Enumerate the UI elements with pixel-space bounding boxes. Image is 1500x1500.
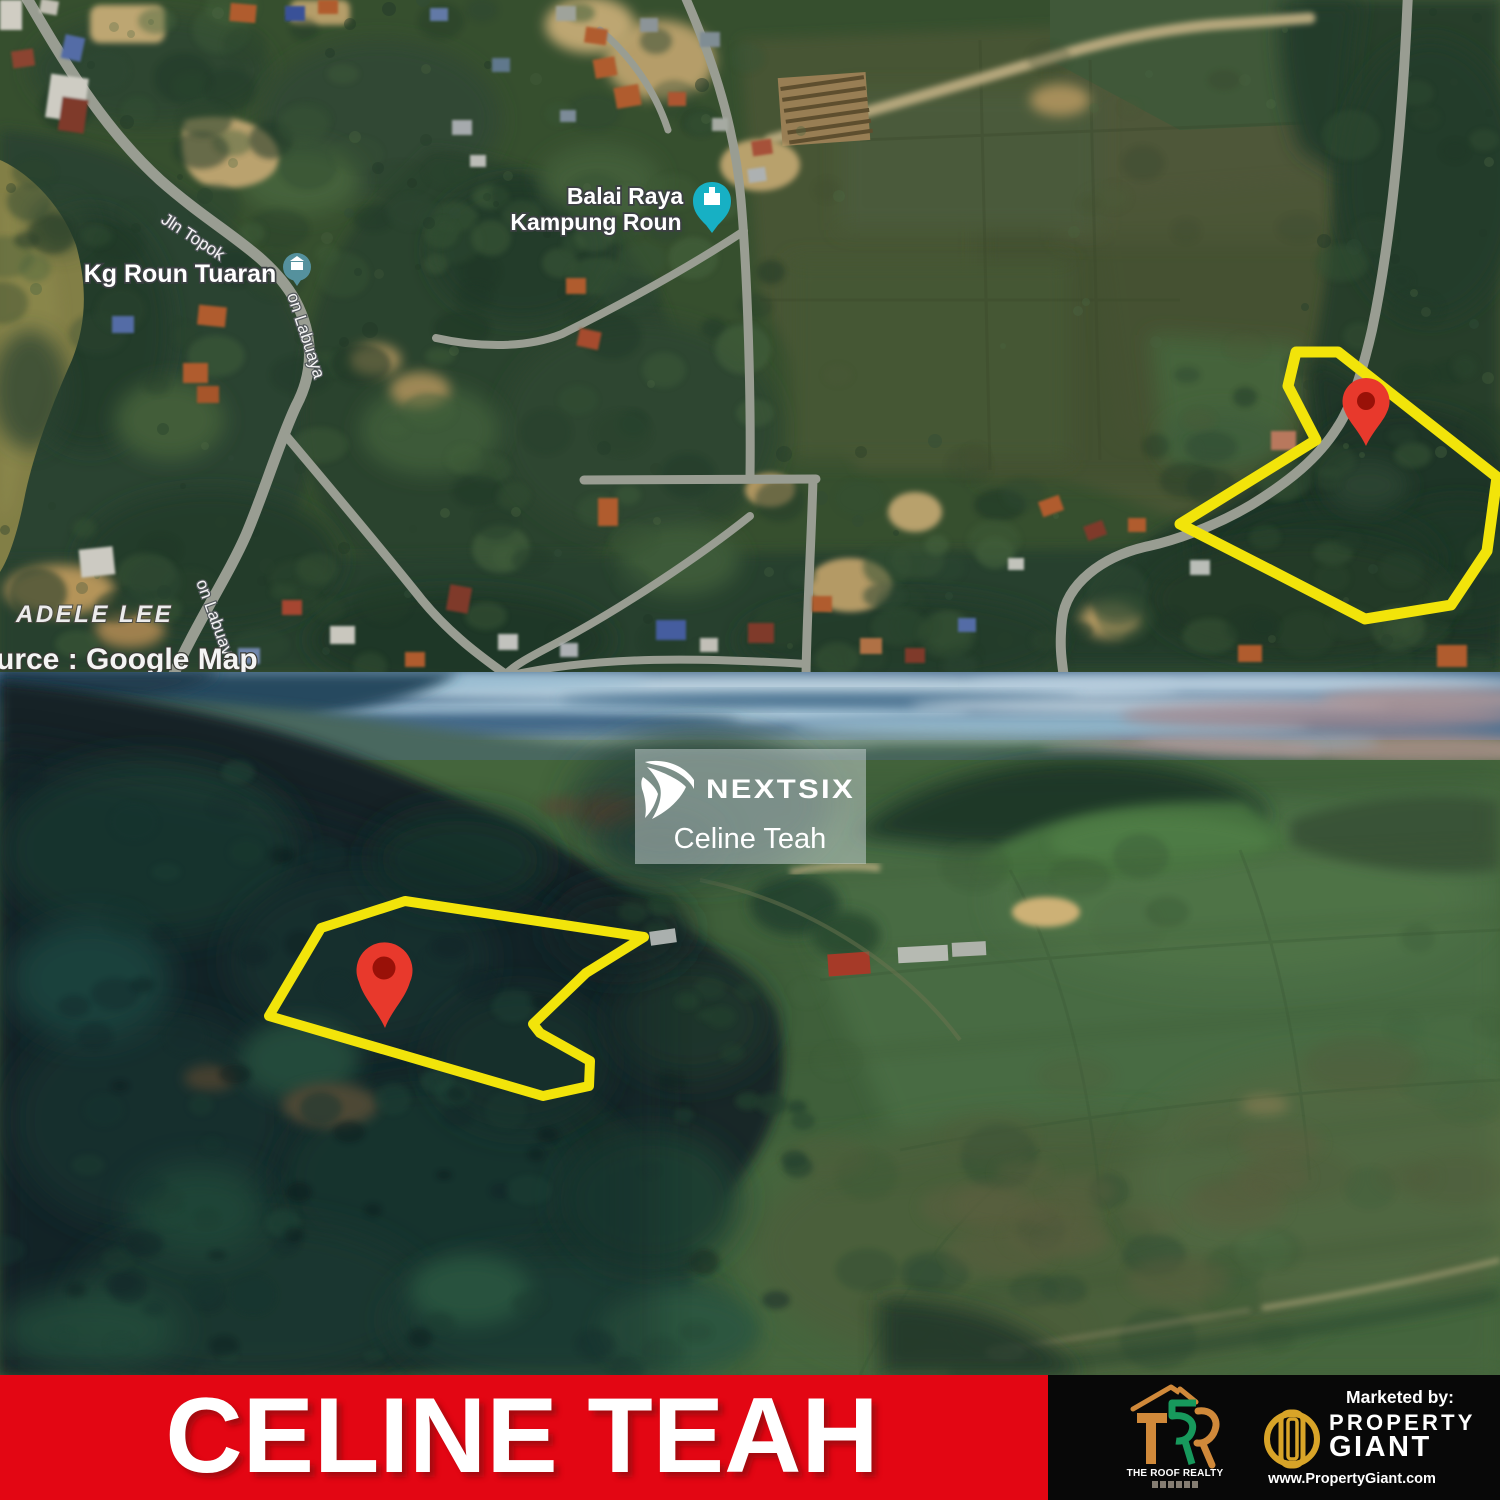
svg-text:NEXTSIX: NEXTSIX [706, 774, 855, 804]
svg-text:GIANT: GIANT [1329, 1431, 1432, 1463]
svg-text:ADELE LEE: ADELE LEE [15, 601, 173, 628]
svg-text:THE ROOF REALTY: THE ROOF REALTY [1127, 1468, 1224, 1479]
svg-text:www.PropertyGiant.com: www.PropertyGiant.com [1267, 1471, 1436, 1487]
svg-text:urce : Google Map: urce : Google Map [0, 643, 258, 676]
svg-text:Balai Raya: Balai Raya [567, 183, 684, 209]
svg-text:Celine Teah: Celine Teah [674, 823, 827, 855]
svg-text:CELINE TEAH: CELINE TEAH [165, 1375, 878, 1495]
svg-text:Kg Roun Tuaran: Kg Roun Tuaran [84, 260, 277, 288]
svg-text:Marketed by:: Marketed by: [1346, 1387, 1454, 1407]
svg-text:Kampung Roun: Kampung Roun [510, 209, 681, 235]
